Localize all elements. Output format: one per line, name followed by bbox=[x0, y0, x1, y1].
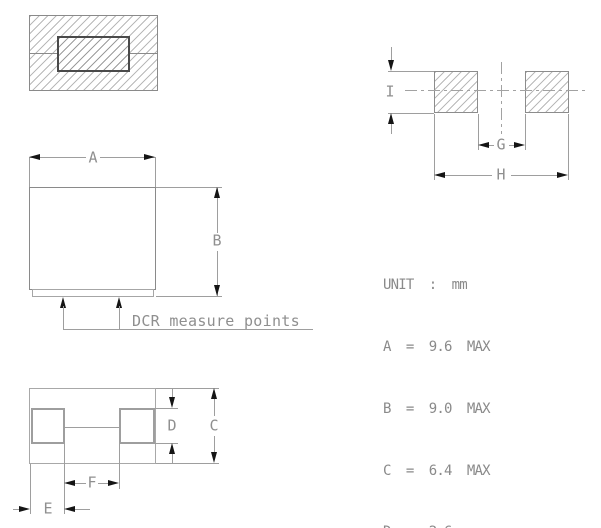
dim-i-arrow-top bbox=[388, 60, 394, 71]
dim-i-ext-top bbox=[388, 71, 434, 72]
dim-b-ext-top bbox=[156, 187, 222, 188]
dim-a-arrow-left bbox=[29, 154, 40, 160]
dim-e-arrow-right bbox=[64, 506, 75, 512]
bottom-view-pad-right bbox=[119, 408, 155, 444]
dimension-row-d: D = 2.6 bbox=[383, 522, 490, 528]
dimension-row-a: A = 9.6 MAX bbox=[383, 337, 490, 358]
dim-i-ext-bottom bbox=[388, 113, 434, 114]
top-view-midline-left bbox=[29, 53, 57, 54]
dim-h-ext-right bbox=[568, 114, 569, 180]
dim-e-tail-right bbox=[75, 509, 90, 510]
front-view-terminal-strip bbox=[32, 289, 154, 297]
bottom-view-connect-line bbox=[65, 427, 119, 428]
dim-i-label: I bbox=[385, 85, 394, 100]
unit-note: UNIT : mm bbox=[383, 275, 490, 296]
dim-h-arrow-right bbox=[557, 172, 568, 178]
dim-g-arrow-right bbox=[514, 142, 525, 148]
front-view-body bbox=[29, 187, 156, 290]
dim-f-line-left bbox=[74, 483, 86, 484]
dim-g-label: G bbox=[496, 138, 505, 153]
dim-g-arrow-left bbox=[478, 142, 489, 148]
dim-h-ext-left bbox=[434, 114, 435, 180]
dim-d-ext-top bbox=[155, 408, 178, 409]
dim-i-tail-bottom bbox=[391, 123, 392, 134]
bottom-view-pad-left bbox=[31, 408, 65, 444]
dim-b-ext-bottom bbox=[156, 296, 222, 297]
dcr-leader-right bbox=[119, 306, 120, 329]
dim-a-ext-right bbox=[155, 157, 156, 187]
dim-a-ext-left bbox=[29, 157, 30, 187]
centerline-horizontal bbox=[405, 90, 588, 91]
dim-h-label: H bbox=[496, 168, 505, 183]
dim-f-ext-right bbox=[119, 444, 120, 489]
dim-d-label: D bbox=[167, 419, 176, 434]
dim-f-ext-left bbox=[64, 444, 65, 514]
land-pad-right bbox=[525, 71, 569, 113]
dcr-note: DCR measure points bbox=[132, 314, 300, 329]
dim-a-arrow-right bbox=[144, 154, 155, 160]
dim-f-label: F bbox=[87, 476, 96, 491]
dim-c-arrow-bottom bbox=[211, 452, 217, 463]
dcr-leader-left bbox=[63, 306, 64, 329]
land-pad-left bbox=[434, 71, 478, 113]
top-view-midline-right bbox=[130, 53, 158, 54]
dim-h-line-left bbox=[445, 175, 492, 176]
dim-a-label: A bbox=[88, 151, 97, 166]
dim-b-arrow-top bbox=[214, 187, 220, 198]
dim-c-label: C bbox=[209, 419, 218, 434]
dim-e-arrow-left bbox=[19, 506, 30, 512]
dim-i-tail-top bbox=[391, 47, 392, 61]
dim-b-label: B bbox=[212, 234, 221, 249]
dim-c-ext-top bbox=[156, 388, 219, 389]
dimension-drawing: A B DCR measure points D C F E bbox=[0, 0, 601, 528]
dim-i-arrow-bottom bbox=[388, 113, 394, 124]
dim-h-line-right bbox=[511, 175, 557, 176]
dim-b-arrow-bottom bbox=[214, 285, 220, 296]
dim-g-ext-right bbox=[525, 114, 526, 150]
dim-d-arrow-bottom bbox=[169, 443, 175, 454]
dim-c-arrow-top bbox=[211, 388, 217, 399]
dim-e-ext-left bbox=[30, 464, 31, 514]
dim-f-arrow-left bbox=[64, 480, 75, 486]
dimension-row-c: C = 6.4 MAX bbox=[383, 461, 490, 482]
dim-f-arrow-right bbox=[108, 480, 119, 486]
dim-c-ext-bottom bbox=[156, 463, 219, 464]
dim-d-arrow-top bbox=[169, 397, 175, 408]
top-view-core bbox=[57, 36, 130, 72]
dimension-row-b: B = 9.0 MAX bbox=[383, 399, 490, 420]
dim-h-arrow-left bbox=[434, 172, 445, 178]
centerline-vertical bbox=[501, 62, 502, 134]
dim-e-label: E bbox=[43, 502, 52, 517]
dimension-table: UNIT : mm A = 9.6 MAX B = 9.0 MAX C = 6.… bbox=[383, 234, 490, 528]
